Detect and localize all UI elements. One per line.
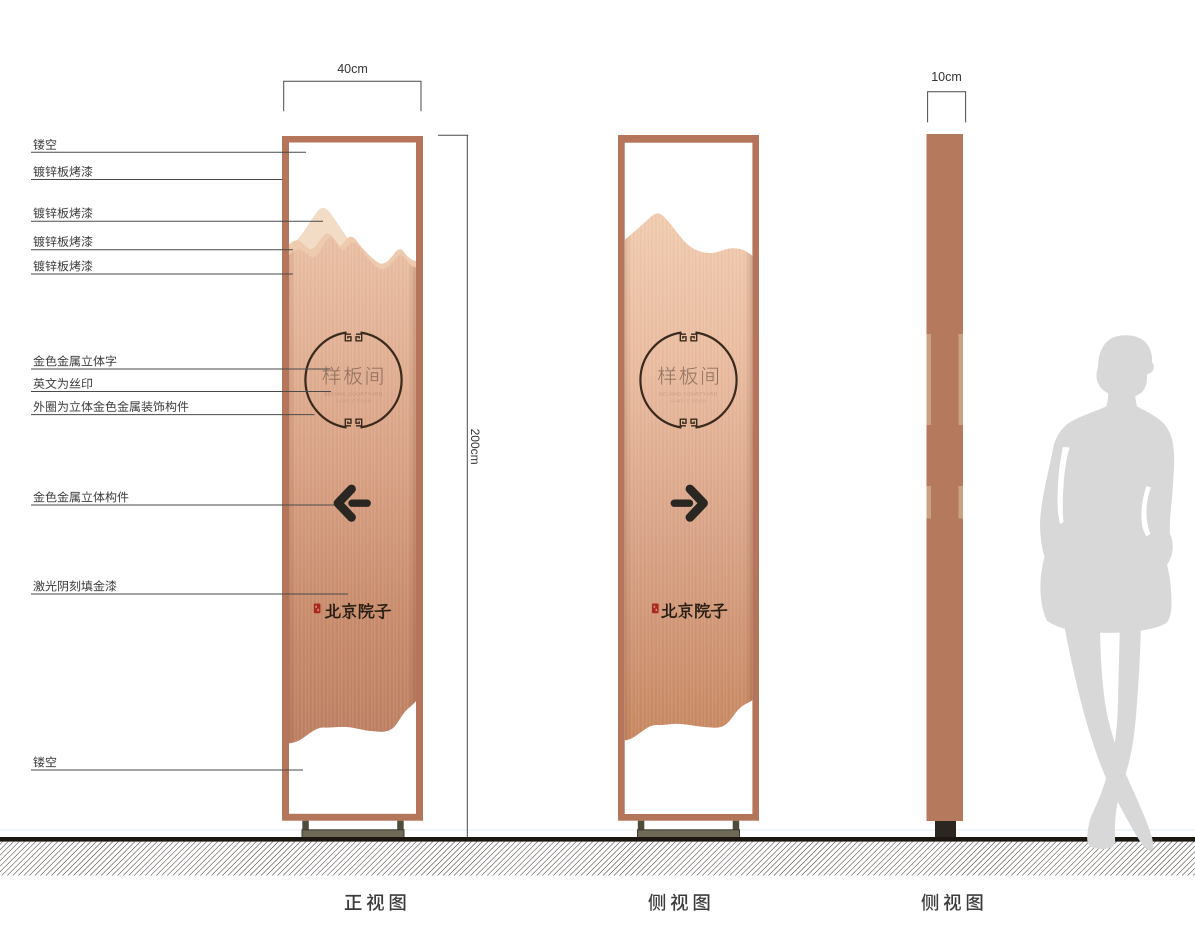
svg-text:BEIJING COURTYARD: BEIJING COURTYARD — [324, 392, 382, 398]
svg-text:SAMPLE ROOM: SAMPLE ROOM — [335, 399, 372, 404]
svg-text:40cm: 40cm — [337, 62, 368, 76]
svg-text:10cm: 10cm — [931, 70, 962, 84]
svg-text:200cm: 200cm — [468, 429, 482, 465]
svg-text:SAMPLE ROOM: SAMPLE ROOM — [670, 399, 707, 404]
svg-text:BEIJING COURTYARD: BEIJING COURTYARD — [659, 392, 717, 398]
